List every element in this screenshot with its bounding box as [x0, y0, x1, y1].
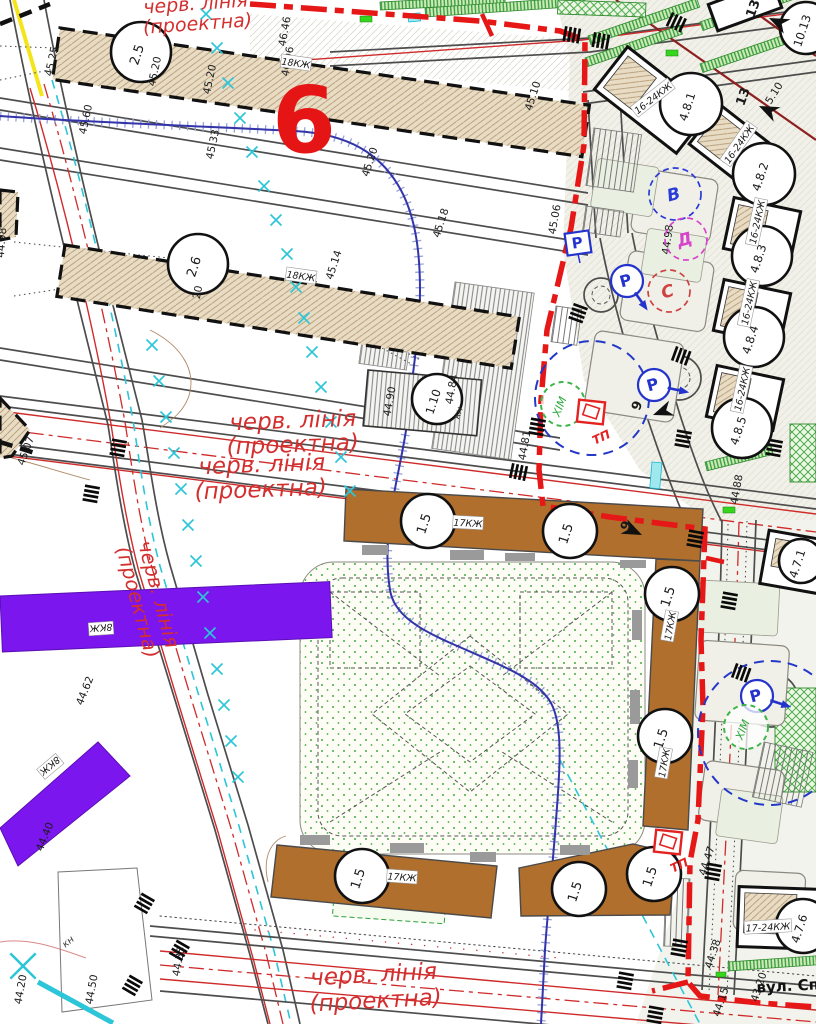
street-name: вул. Сп — [756, 975, 816, 996]
building-circle: 4.8.2 — [733, 143, 795, 205]
building-circle: 1.5 — [543, 504, 597, 558]
storey-label: 8КЖ — [88, 621, 114, 636]
storey-label: 17КЖ — [386, 869, 417, 885]
building-circle: 4.8.3 — [732, 226, 792, 286]
storey-text: 17КЖ — [387, 871, 418, 884]
red-line-annotation: (проектна) — [194, 475, 327, 506]
khim-circle: ХІМ — [724, 705, 768, 749]
building-circle: 2.6 — [168, 234, 228, 294]
courtyard — [300, 562, 645, 854]
building-circle: 4.8.4 — [724, 307, 784, 367]
building-circle: 1.5 — [552, 862, 606, 916]
green-crosshatch-area — [558, 0, 646, 17]
building-circle: 4.7.1 — [779, 539, 816, 583]
building-circle: 1.5 — [335, 849, 389, 903]
storey-text: 8КЖ — [88, 621, 112, 634]
section-number: 6 — [272, 67, 336, 174]
storey-label: 17КЖ — [452, 515, 483, 530]
parking-stalls — [586, 128, 642, 192]
storey-label: 17-24КЖ — [744, 919, 792, 935]
plan-drawing: 2.52.61.101.51.51.51.51.51.51.54.8.14.8.… — [0, 0, 816, 1024]
detail-plan-canvas: 2.52.61.101.51.51.51.51.51.51.54.8.14.8.… — [0, 0, 816, 1024]
building-circle: 1.5 — [401, 494, 455, 548]
storey-text: 17КЖ — [453, 518, 483, 531]
